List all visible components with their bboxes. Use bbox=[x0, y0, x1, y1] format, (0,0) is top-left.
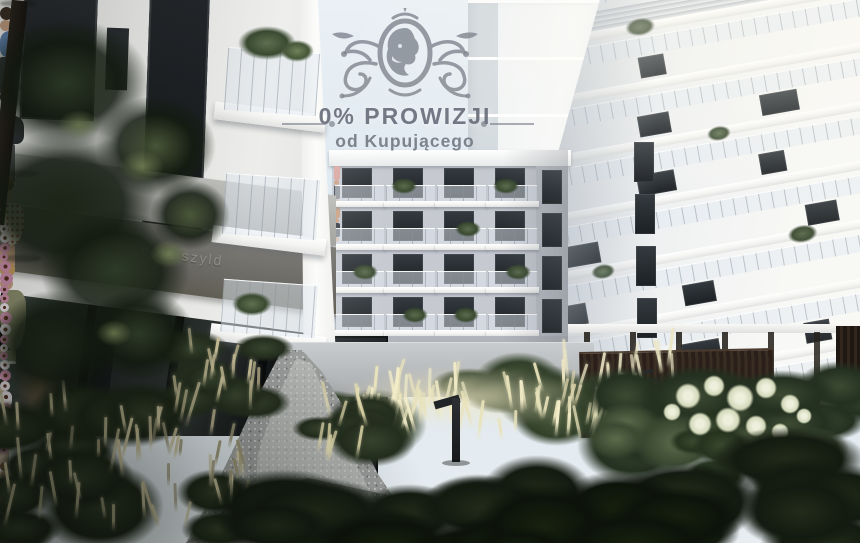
tree-foliage-highlight bbox=[96, 320, 132, 346]
watermark-dot bbox=[481, 121, 487, 127]
watermark-line1: 0% PROWIZJI bbox=[248, 103, 562, 130]
courtyard-render: Miejsce na szyld bbox=[0, 0, 860, 543]
tree-foliage-highlight bbox=[58, 110, 100, 140]
lion-crest-ornament bbox=[320, 8, 490, 103]
watermark: 0% PROWIZJI od Kupującego bbox=[248, 8, 562, 152]
tree-branch bbox=[0, 397, 3, 501]
tree-foliage-highlight bbox=[120, 150, 164, 182]
watermark-line2: od Kupującego bbox=[248, 131, 562, 152]
watermark-rule-left bbox=[282, 123, 326, 125]
watermark-dot bbox=[329, 121, 335, 127]
watermark-rule-right bbox=[490, 123, 534, 125]
tree-foliage-highlight bbox=[150, 240, 188, 268]
tree-foliage bbox=[150, 180, 230, 250]
